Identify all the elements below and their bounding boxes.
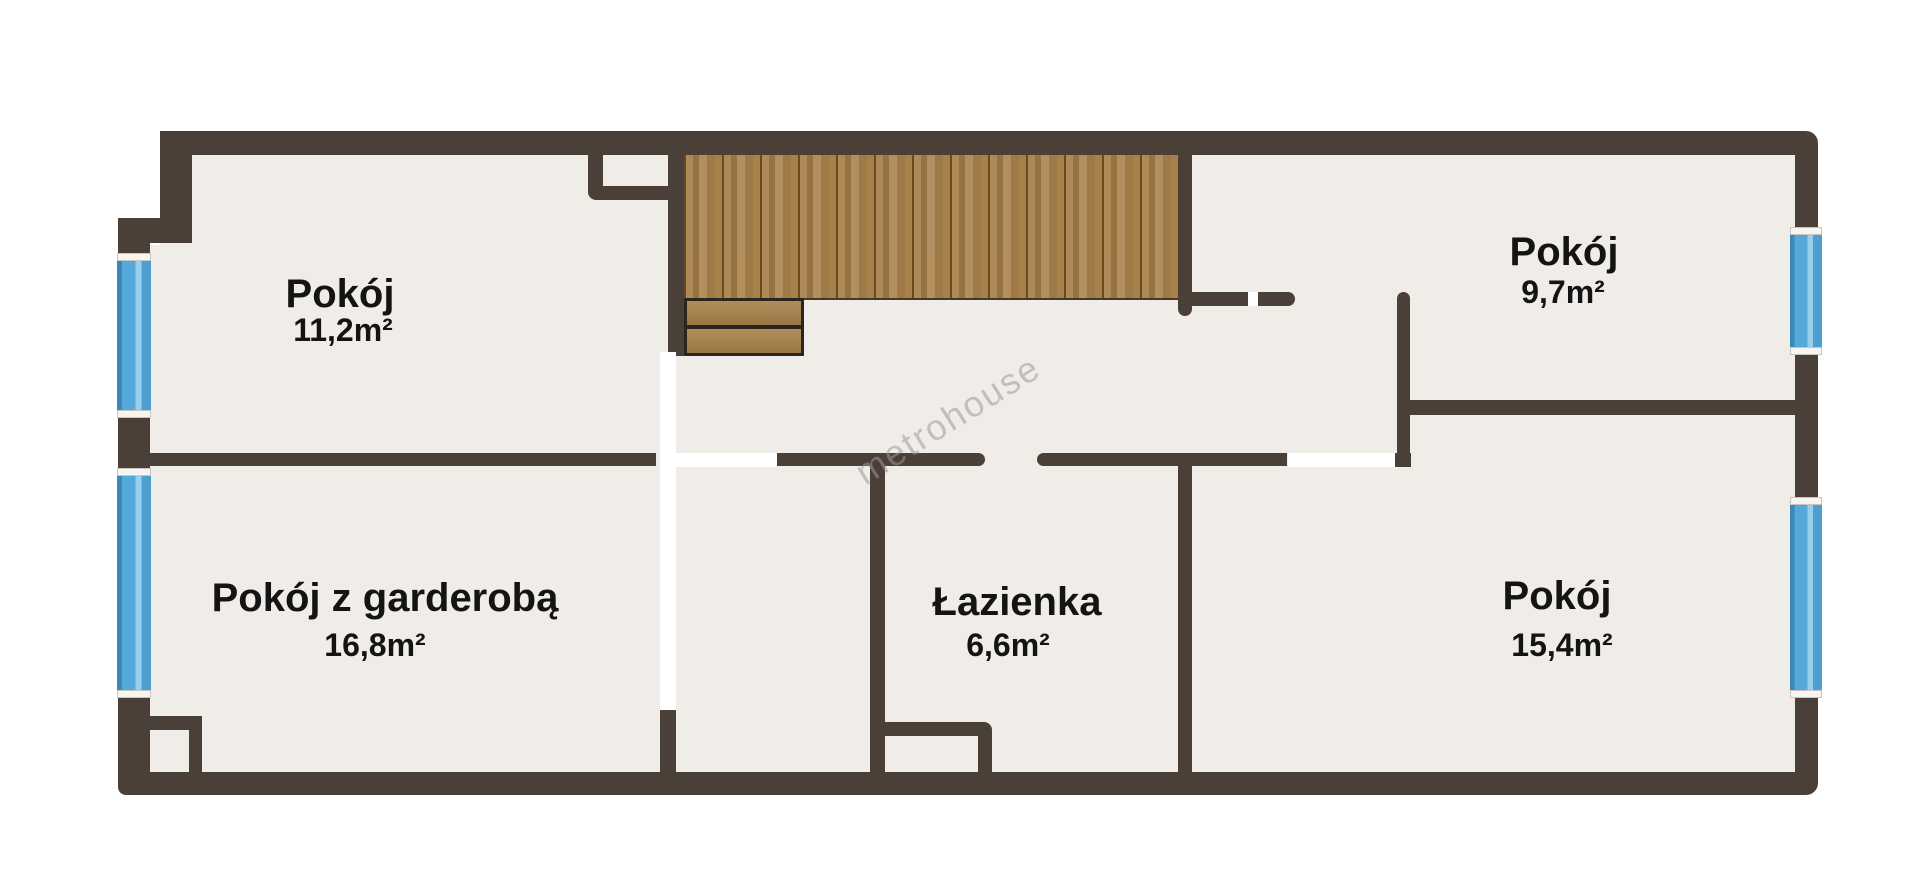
outer-wall-top bbox=[160, 131, 1818, 155]
outside-mask-top-left bbox=[0, 0, 160, 245]
stair-landing-step-lower bbox=[684, 326, 804, 356]
room-label-pokoj-9: Pokój bbox=[1510, 232, 1619, 272]
room-area-garderoba: 16,8m² bbox=[324, 629, 425, 661]
door-opening-room-15 bbox=[1288, 453, 1395, 467]
window-glass bbox=[1790, 235, 1822, 347]
wall-left-of-stairs bbox=[668, 154, 684, 356]
room-area-lazienka: 6,6m² bbox=[966, 629, 1050, 661]
door-opening-corridor bbox=[676, 453, 777, 467]
wall-mid-b bbox=[1037, 453, 1287, 466]
room-area-pokoj-9: 9,7m² bbox=[1521, 276, 1605, 308]
window-glass bbox=[117, 476, 151, 690]
room-label-pokoj-11: Pokój bbox=[286, 274, 395, 314]
window-frame-cap bbox=[1790, 690, 1822, 698]
door-opening-left-rooms bbox=[660, 352, 676, 710]
wall-stair-head bbox=[1178, 292, 1295, 306]
room-area-pokoj-15: 15,4m² bbox=[1511, 629, 1612, 661]
door-jamb-mark bbox=[1248, 292, 1258, 306]
room-area-pokoj-11: 11,2m² bbox=[293, 314, 393, 346]
window-glass bbox=[1790, 505, 1822, 690]
window-frame-cap bbox=[117, 468, 151, 476]
outer-wall-bottom bbox=[118, 772, 1818, 795]
window-left-lower bbox=[117, 468, 151, 698]
window-frame-cap bbox=[117, 690, 151, 698]
wall-divider-left-rooms bbox=[140, 453, 656, 466]
window-frame-cap bbox=[117, 410, 151, 418]
window-frame-cap bbox=[1790, 227, 1822, 235]
wall-below-left-door bbox=[660, 710, 676, 772]
window-right-lower bbox=[1790, 497, 1822, 698]
window-right-upper bbox=[1790, 227, 1822, 355]
window-frame-cap bbox=[1790, 497, 1822, 505]
bathroom-wall-left bbox=[870, 453, 885, 772]
window-glass bbox=[117, 261, 151, 410]
bathroom-notch-v bbox=[978, 736, 992, 772]
wall-notch-bottom-left-v bbox=[189, 716, 202, 772]
window-left-upper bbox=[117, 253, 151, 418]
floor-plan: Pokój 11,2m² Pokój 9,7m² Pokój z gardero… bbox=[0, 0, 1920, 879]
stair-landing-step-upper bbox=[684, 298, 804, 328]
bathroom-wall-right bbox=[1178, 453, 1192, 772]
room-label-pokoj-15: Pokój bbox=[1503, 576, 1612, 616]
window-frame-cap bbox=[1790, 347, 1822, 355]
bathroom-notch-h bbox=[884, 722, 992, 736]
room-9-wall-bottom bbox=[1410, 400, 1795, 415]
staircase bbox=[684, 155, 1178, 300]
window-frame-cap bbox=[117, 253, 151, 261]
room-label-lazienka: Łazienka bbox=[933, 582, 1102, 622]
room-label-garderoba: Pokój z garderobą bbox=[212, 578, 559, 618]
room-9-wall-left bbox=[1397, 292, 1410, 467]
